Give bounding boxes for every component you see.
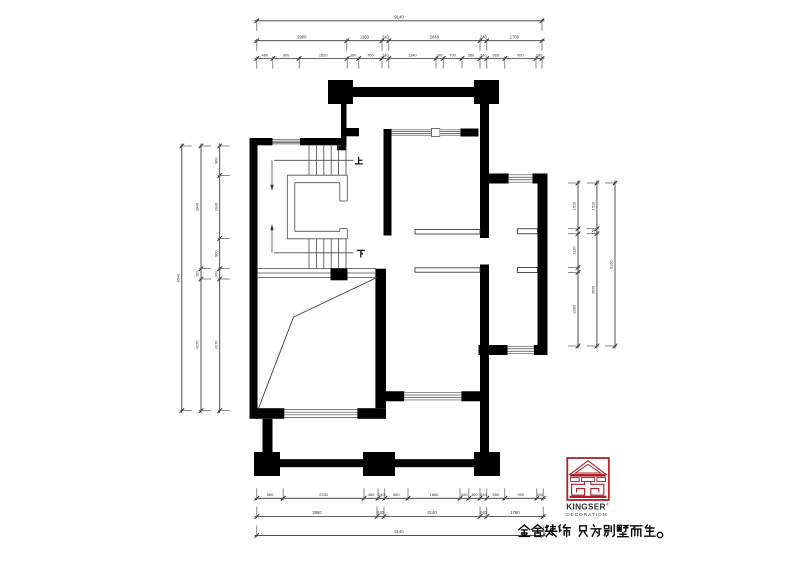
svg-text:900: 900 bbox=[518, 492, 525, 497]
svg-text:4270: 4270 bbox=[195, 340, 200, 349]
svg-text:240: 240 bbox=[480, 510, 488, 515]
svg-text:1120: 1120 bbox=[572, 246, 577, 255]
svg-text:480: 480 bbox=[368, 492, 375, 497]
svg-text:240: 240 bbox=[480, 52, 487, 57]
svg-text:1760: 1760 bbox=[510, 510, 520, 515]
svg-text:2040: 2040 bbox=[213, 202, 218, 211]
svg-text:480: 480 bbox=[262, 52, 269, 57]
svg-text:700: 700 bbox=[449, 52, 456, 57]
svg-text:760: 760 bbox=[367, 52, 374, 57]
svg-text:240: 240 bbox=[536, 52, 543, 57]
svg-text:240: 240 bbox=[436, 52, 443, 57]
svg-text:3140: 3140 bbox=[427, 510, 437, 515]
svg-text:240: 240 bbox=[377, 510, 385, 515]
svg-text:240: 240 bbox=[480, 34, 488, 39]
svg-text:680: 680 bbox=[393, 492, 400, 497]
svg-text:1660: 1660 bbox=[430, 492, 439, 497]
svg-text:280: 280 bbox=[461, 492, 468, 497]
svg-text:9140: 9140 bbox=[394, 529, 404, 534]
svg-text:1340: 1340 bbox=[408, 52, 417, 57]
svg-text:3620: 3620 bbox=[591, 285, 596, 294]
svg-text:2330: 2330 bbox=[572, 304, 577, 313]
svg-text:3860: 3860 bbox=[312, 510, 322, 515]
svg-text:DECORATION: DECORATION bbox=[566, 512, 607, 518]
svg-text:2900: 2900 bbox=[297, 34, 307, 39]
svg-text:1520: 1520 bbox=[591, 201, 596, 210]
svg-text:2840: 2840 bbox=[430, 34, 440, 39]
svg-text:200: 200 bbox=[537, 492, 544, 497]
svg-text:960: 960 bbox=[213, 157, 218, 164]
svg-text:8540: 8540 bbox=[176, 273, 181, 282]
svg-text:9140: 9140 bbox=[394, 14, 404, 19]
svg-text:1160: 1160 bbox=[360, 34, 370, 39]
svg-text:350: 350 bbox=[196, 271, 200, 277]
svg-text:860: 860 bbox=[267, 492, 274, 497]
svg-text:900: 900 bbox=[517, 52, 524, 57]
svg-text:1520: 1520 bbox=[572, 201, 577, 210]
svg-text:5260: 5260 bbox=[609, 259, 614, 268]
svg-text:580: 580 bbox=[468, 52, 475, 57]
svg-text:360: 360 bbox=[471, 492, 478, 497]
svg-text:960: 960 bbox=[213, 250, 218, 257]
svg-text:KINGSER: KINGSER bbox=[566, 503, 605, 512]
svg-text:2330: 2330 bbox=[319, 492, 328, 497]
svg-text:380: 380 bbox=[350, 52, 357, 57]
svg-text:240: 240 bbox=[480, 492, 487, 497]
svg-text:3940: 3940 bbox=[195, 202, 200, 211]
svg-text:1760: 1760 bbox=[510, 34, 520, 39]
svg-text:150: 150 bbox=[592, 228, 596, 234]
svg-text:900: 900 bbox=[283, 52, 290, 57]
svg-text:4270: 4270 bbox=[213, 340, 218, 349]
svg-text:240: 240 bbox=[378, 492, 385, 497]
svg-text:580: 580 bbox=[493, 492, 500, 497]
svg-text:660: 660 bbox=[493, 52, 500, 57]
svg-text:240: 240 bbox=[382, 34, 390, 39]
svg-text:240: 240 bbox=[382, 52, 389, 57]
svg-text:350: 350 bbox=[214, 271, 218, 277]
svg-text:1520: 1520 bbox=[319, 52, 328, 57]
